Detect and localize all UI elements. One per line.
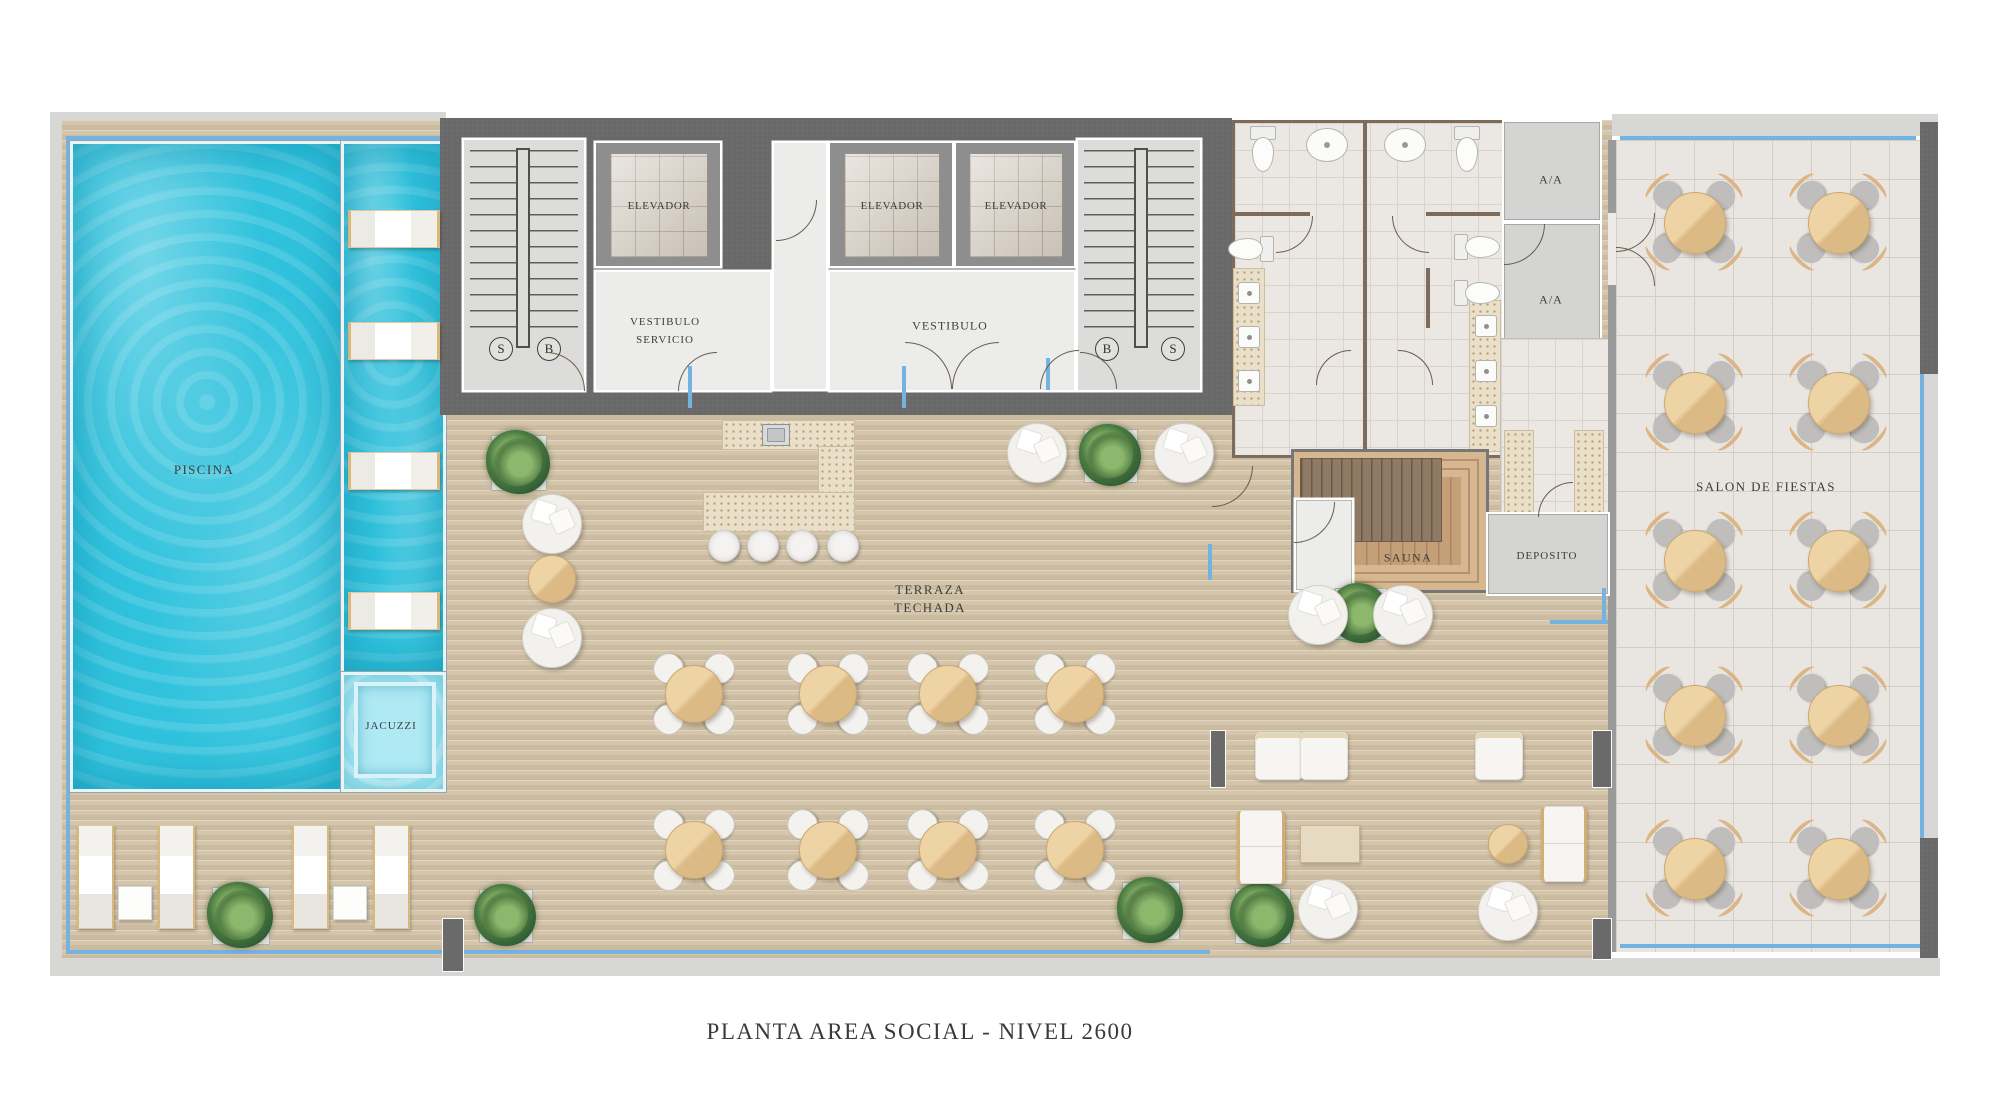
door-swing-arc xyxy=(1392,216,1429,253)
door-swing-arc xyxy=(1538,482,1573,517)
plant-icon xyxy=(215,890,265,940)
dining-table xyxy=(1664,530,1726,592)
round-wood-table xyxy=(1488,824,1528,864)
door-swing-arc xyxy=(776,200,817,241)
dining-table xyxy=(799,821,857,879)
toilet-fixture xyxy=(1454,232,1500,262)
label-salon-fiestas: SALON DE FIESTAS xyxy=(1696,479,1836,495)
door-swing-arc xyxy=(678,352,717,391)
dining-table xyxy=(919,821,977,879)
label-sauna: SAUNA xyxy=(1384,551,1432,566)
lounge-sofa xyxy=(1237,810,1285,884)
pool-lounger xyxy=(348,452,440,490)
round-lounge-chair xyxy=(1154,423,1214,483)
door-swing-arc xyxy=(1294,502,1335,543)
bar-stool xyxy=(708,530,740,562)
sink-square xyxy=(1475,315,1497,337)
label-piscina: PISCINA xyxy=(174,462,234,478)
dining-table xyxy=(1046,821,1104,879)
dining-table xyxy=(1046,665,1104,723)
sink-oval xyxy=(1384,128,1426,162)
dining-table xyxy=(665,821,723,879)
label-terraza-2: TECHADA xyxy=(894,600,966,616)
lounge-sofa xyxy=(1541,806,1587,882)
round-lounge-chair xyxy=(522,608,582,668)
plant-icon xyxy=(1238,891,1286,939)
round-lounge-chair xyxy=(1373,585,1433,645)
glass-door xyxy=(1208,544,1212,580)
label-vestibulo-servicio-2: SERVICIO xyxy=(636,334,694,346)
dining-table xyxy=(665,665,723,723)
plant-icon xyxy=(1125,885,1175,935)
pool-lounger xyxy=(348,322,440,360)
door-swing-arc xyxy=(952,342,999,389)
bar-sink xyxy=(762,424,790,446)
label-vestibulo-servicio-1: VESTIBULO xyxy=(630,316,700,328)
door-swing-arc xyxy=(1040,350,1079,389)
label-jacuzzi: JACUZZI xyxy=(365,720,417,732)
toilet-fixture xyxy=(1454,278,1500,308)
sink-square xyxy=(1238,282,1260,304)
door-swing-arc xyxy=(1080,352,1117,389)
dining-table xyxy=(799,665,857,723)
column-post xyxy=(1592,918,1612,960)
label-terraza-1: TERRAZA xyxy=(895,582,965,598)
floor-plan-canvas: S B ELEVADOR ELEVADOR ELEVADOR B S xyxy=(0,0,2000,1100)
side-table xyxy=(118,886,152,920)
side-table xyxy=(333,886,367,920)
dining-table xyxy=(1808,838,1870,900)
dining-table xyxy=(1808,685,1870,747)
dining-table xyxy=(1808,372,1870,434)
plant-icon xyxy=(494,438,542,486)
sun-lounger xyxy=(158,825,195,929)
dining-table xyxy=(1664,685,1726,747)
sink-square xyxy=(1475,405,1497,427)
sun-lounger xyxy=(292,825,329,929)
door-swing-arc xyxy=(1316,350,1351,385)
lounge-armchair xyxy=(1255,732,1303,780)
sink-square xyxy=(1238,326,1260,348)
door-swing-arc xyxy=(546,352,585,391)
label-vestibulo: VESTIBULO xyxy=(912,319,988,334)
bar-counter-right xyxy=(818,446,855,496)
column-post xyxy=(1592,730,1612,788)
plant-icon xyxy=(482,892,528,938)
bar-stool xyxy=(786,530,818,562)
sun-lounger xyxy=(77,825,114,929)
plant-icon xyxy=(1087,432,1133,478)
door-swing-arc xyxy=(905,342,952,389)
door-swing-arc xyxy=(1504,224,1545,265)
door-swing-arc xyxy=(1276,216,1313,253)
dining-table xyxy=(919,665,977,723)
furniture-layer xyxy=(0,0,2000,1100)
page-title: PLANTA AREA SOCIAL - NIVEL 2600 xyxy=(707,1019,1134,1045)
round-lounge-chair xyxy=(1288,585,1348,645)
dining-table xyxy=(1664,372,1726,434)
label-deposito: DEPOSITO xyxy=(1517,550,1578,562)
bar-counter-bottom xyxy=(703,492,855,532)
toilet-fixture xyxy=(1452,126,1482,172)
pool-lounger xyxy=(348,592,440,630)
label-aa-1: A/A xyxy=(1539,173,1563,188)
bar-stool xyxy=(827,530,859,562)
door-swing-arc xyxy=(1212,466,1253,507)
door-swing-arc xyxy=(1398,350,1433,385)
dining-table xyxy=(1808,530,1870,592)
label-aa-2: A/A xyxy=(1539,293,1563,308)
dining-table xyxy=(1664,192,1726,254)
dining-table xyxy=(1664,838,1726,900)
round-wood-table xyxy=(528,555,576,603)
dining-table xyxy=(1808,192,1870,254)
column-post xyxy=(442,918,464,972)
round-lounge-chair xyxy=(1478,881,1538,941)
coffee-table xyxy=(1300,825,1360,863)
pool-lounger xyxy=(348,210,440,248)
sink-square xyxy=(1238,370,1260,392)
round-lounge-chair xyxy=(522,494,582,554)
toilet-fixture xyxy=(1248,126,1278,172)
sink-oval xyxy=(1306,128,1348,162)
sun-lounger xyxy=(373,825,410,929)
bar-stool xyxy=(747,530,779,562)
sink-square xyxy=(1475,360,1497,382)
column-post xyxy=(1210,730,1226,788)
lounge-armchair xyxy=(1300,732,1348,780)
round-lounge-chair xyxy=(1298,879,1358,939)
lounge-armchair xyxy=(1475,732,1523,780)
toilet-fixture xyxy=(1228,234,1274,264)
round-lounge-chair xyxy=(1007,423,1067,483)
